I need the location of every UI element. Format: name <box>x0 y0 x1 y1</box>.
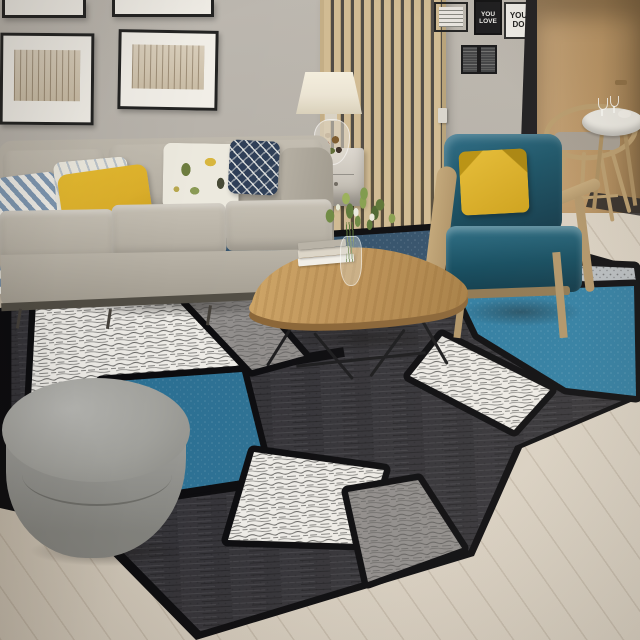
picture-frame-2 <box>112 0 214 17</box>
coffee-table-crossbar <box>296 351 426 368</box>
flower-bouquet <box>308 180 408 242</box>
glass-vase <box>340 236 362 286</box>
small-frame-1 <box>461 45 479 74</box>
sofa-seat-cushion <box>111 203 226 257</box>
you-love-poster: YOU LOVE <box>474 0 502 35</box>
framed-building-art <box>132 44 204 90</box>
picture-frame-4 <box>117 29 218 111</box>
sofa-leg <box>16 309 22 329</box>
dense-text-poster <box>434 2 468 32</box>
ottoman-seam <box>22 444 172 506</box>
sofa-leg <box>206 305 212 325</box>
small-frame-2 <box>479 45 497 74</box>
table-lamp-shade <box>296 72 362 114</box>
door-handle-icon <box>615 80 627 85</box>
wine-glass-stem <box>613 106 615 113</box>
picture-frame-3 <box>0 33 94 126</box>
table-bowl <box>618 110 631 118</box>
wine-glass-1 <box>598 98 608 110</box>
grey-ottoman <box>0 378 200 574</box>
sofa-leg <box>106 309 112 329</box>
coffee-table-leg <box>313 332 354 380</box>
coffee-table <box>236 180 506 386</box>
picture-frame-1 <box>2 0 86 18</box>
framed-building-art <box>13 49 80 101</box>
wine-glass-stem <box>601 109 603 116</box>
light-switch <box>438 108 447 123</box>
